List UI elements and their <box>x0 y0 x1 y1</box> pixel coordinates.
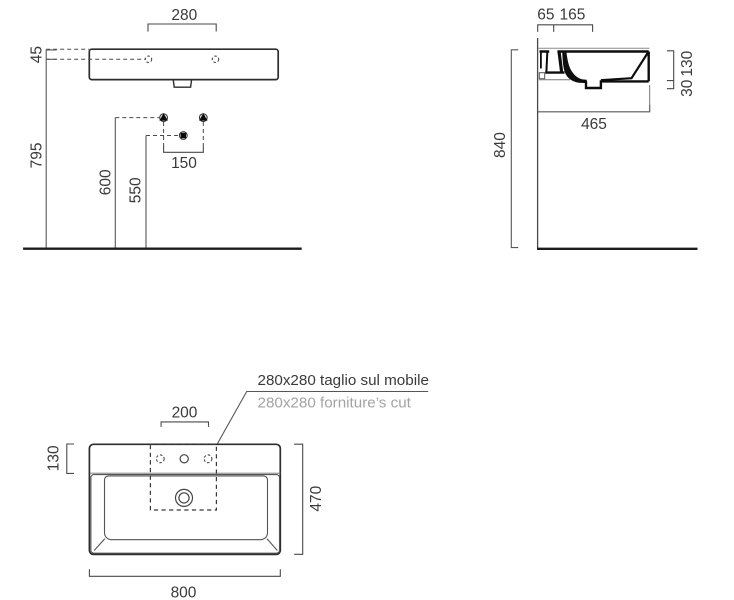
svg-text:280: 280 <box>171 7 197 24</box>
svg-text:840: 840 <box>492 132 509 158</box>
svg-text:130: 130 <box>679 50 696 76</box>
svg-text:65: 65 <box>537 7 554 24</box>
svg-text:280x280 forniture’s cut: 280x280 forniture’s cut <box>258 395 412 412</box>
svg-text:280x280 taglio sul mobile: 280x280 taglio sul mobile <box>258 372 429 389</box>
svg-text:465: 465 <box>581 116 607 133</box>
svg-text:795: 795 <box>29 142 46 168</box>
svg-text:130: 130 <box>45 445 62 471</box>
svg-text:45: 45 <box>29 46 46 63</box>
svg-text:470: 470 <box>308 485 325 511</box>
svg-text:600: 600 <box>97 169 114 195</box>
svg-text:150: 150 <box>171 155 197 172</box>
svg-text:550: 550 <box>128 177 145 203</box>
svg-text:800: 800 <box>171 584 197 600</box>
svg-text:200: 200 <box>172 404 198 421</box>
svg-text:165: 165 <box>559 7 585 24</box>
svg-text:30: 30 <box>679 79 696 97</box>
